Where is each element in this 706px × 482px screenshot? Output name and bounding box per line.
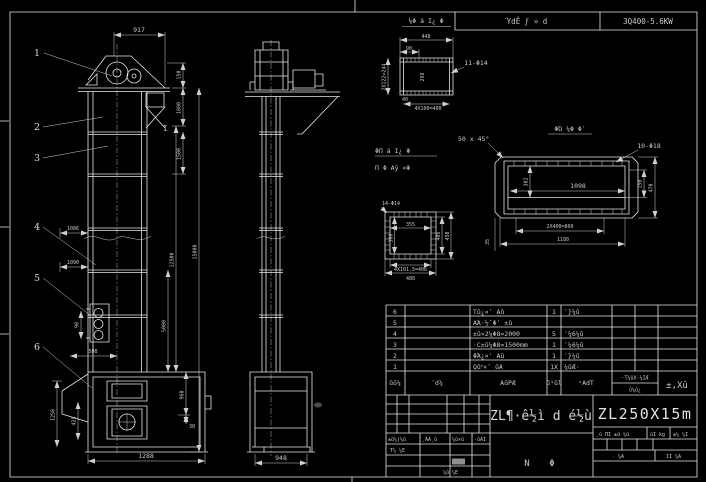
bom-footer-weight-top: ·Τ¼ûX·¼ΙÆ <box>621 375 648 382</box>
cad-viewport: ΎdÊ ϝ » d 3Q400-5.6KW I 1 2 3 4 5 6 <box>0 0 706 482</box>
bom-no: 5 <box>393 319 397 327</box>
tb-rev-header-4: ·ûΑΙ <box>474 436 486 443</box>
detail-c-body <box>495 157 638 218</box>
dim-1288: 1288 <box>138 452 154 460</box>
balloon-6: 6 <box>34 342 40 353</box>
bom-no: 3 <box>393 341 397 349</box>
bom-table: 6 Τû¿×ʹ Αû 1 ʹ}¼û 5 ΑΆ·½ˇΦʹ ±û 4 ±û×2¼Φ8… <box>386 305 697 477</box>
title-block: ±û¼|¼û ¸ΆΑ¸û ¼û×û ·ûΑΙ Τ¼ ¼Ε ¼û ¼Ε ZL¶·ê… <box>386 395 697 477</box>
bom-footer-name: ΑûΡÆ <box>500 379 516 387</box>
detail-c-innerw: 1098 <box>570 182 586 190</box>
drawing-frame <box>0 0 697 482</box>
tb-right-header-3: ±¼ ¼Ι <box>673 432 688 438</box>
detail-c-title: ΦΏ ¼Φ Φʹ <box>554 125 585 133</box>
detail-b-innerw: 355 <box>406 222 415 228</box>
dim-30: 30 <box>189 424 195 430</box>
bom-footer-remark: ±,Xû <box>666 381 688 391</box>
bom-name: Τû¿×ʹ Αû <box>473 308 504 316</box>
detail-b-rightin: 406 <box>436 231 442 240</box>
bom-name: ΑΆ·½ˇΦʹ ±û <box>473 319 512 327</box>
section-mark-label: I <box>163 124 168 133</box>
front-section-joints <box>88 132 147 318</box>
boot-pulley-cross <box>118 413 136 431</box>
bom-name: Qûʺ×ʹ ûΑ <box>473 363 503 371</box>
dim-1090: 1090 <box>67 260 79 266</box>
balloon-4: 4 <box>34 222 40 233</box>
dim-1250: 1250 <box>51 409 57 421</box>
bom-footer: ûû¼ ʹd¼ ΑûΡÆ û¹ûl ˣΑdΤ ·Τ¼ûX·¼ΙÆ û¼û¿ ±,… <box>389 375 688 394</box>
dim-917: 917 <box>133 26 145 34</box>
dim-1086: 1086 <box>67 226 79 232</box>
front-head-roof <box>78 56 170 92</box>
detail-c-holes-note: 10-Φ18 <box>637 142 661 150</box>
bom-name: ΦΆ¿×ʹ Αû <box>473 352 504 360</box>
bom-name: ±û×2¼Φ8=2000 <box>473 330 520 338</box>
detail-b-botout: 480 <box>406 276 415 282</box>
detail-c-botin: 2X400=800 <box>546 224 573 230</box>
bom-qty: 1 <box>552 308 556 316</box>
bom-qty: 1X <box>550 363 558 371</box>
bom-mat: ʹ}¼û <box>564 352 580 360</box>
door-knob-1 <box>94 309 103 318</box>
bom-mat: ¼ûÆ· <box>564 363 580 371</box>
bom-footer-qty: û¹ûl <box>546 379 562 387</box>
side-boot <box>247 372 315 452</box>
bom-no: 1 <box>393 363 397 371</box>
detail-b-botin: 4X101.5=406 <box>394 267 427 273</box>
front-tower-walls <box>88 92 147 373</box>
detail-c-innerh: 302 <box>524 177 530 186</box>
bom-grid <box>386 305 697 477</box>
inspection-door <box>86 304 109 342</box>
bom-row: 2 ΦΆ¿×ʹ Αû 1 ʹ}¼û <box>393 352 580 360</box>
detail-a-dim40: 40 <box>402 97 408 103</box>
tb-right-header-2: ûΙ kg <box>650 431 665 438</box>
header-right-text: 3Q400-5.6KW <box>623 17 673 26</box>
smudge-mark <box>314 403 322 408</box>
dim-1500: 1500 <box>177 148 183 160</box>
cad-drawing-canvas: ΎdÊ ϝ » d 3Q400-5.6KW I 1 2 3 4 5 6 <box>0 0 706 482</box>
detail-a-title: ⅛Φ á Ι¿ Φ <box>408 16 443 25</box>
dim-12500: 12500 <box>170 252 176 267</box>
bom-footer-mat: ˣΑdΤ <box>578 379 594 387</box>
bom-mat: ʹ}¼û <box>564 308 580 316</box>
detail-c-chamfer-note: 50 x 45° <box>458 135 489 143</box>
detail-a-dim90: 90 <box>406 46 412 52</box>
tb-rev-header-1: ±û¼|¼û <box>388 436 406 443</box>
tb-sheet-left: Ν <box>524 459 529 469</box>
detail-b-title-2: Π Φ Αÿ ×Φ <box>375 164 410 172</box>
dim-948: 948 <box>275 454 287 462</box>
bom-no: 2 <box>393 352 397 360</box>
drive-pulley-hub <box>132 74 136 78</box>
dim-508: 508 <box>88 349 97 355</box>
boot-section <box>85 372 211 452</box>
balloon-5: 5 <box>34 273 40 284</box>
detail-a-bolt-ticks <box>407 59 446 95</box>
border-rect <box>10 12 697 477</box>
tb-sheet-row-1: · ¼Α <box>612 454 624 460</box>
tb-bottom-label: ¼û ¼Ε <box>443 469 458 476</box>
door-knob-2 <box>94 320 103 329</box>
side-head <box>250 42 293 90</box>
detail-a-dim448: 448 <box>421 34 430 40</box>
side-elevation-view: 948 <box>245 40 340 466</box>
bom-row: 4 ±û×2¼Φ8=2000 5 ʹ¼6¼û <box>393 330 584 338</box>
bom-footer-no: ûû¼ <box>389 379 401 387</box>
detail-b-rightout: 450 <box>445 231 451 240</box>
detail-a-inner-dim: 298 <box>420 72 426 81</box>
dim-1080: 1080 <box>177 102 183 114</box>
balloon-3: 3 <box>34 153 40 164</box>
detail-a-bottom-dim: 4X100=400 <box>414 106 441 112</box>
detail-c-chamfer-leader <box>488 143 503 158</box>
detail-a-holes-note: 11-Φ14 <box>464 59 488 67</box>
dim-5000: 5000 <box>162 320 168 332</box>
tb-right-header-1: ¸û ΠΙ ±û ¼û <box>596 431 629 438</box>
detail-casing-panel: ΦΏ ¼Φ Φʹ 50 x 45° 10-Φ18 1098 302 150 47… <box>458 125 661 251</box>
dim-15000: 15000 <box>193 244 199 259</box>
balloon-1: 1 <box>34 48 40 59</box>
detail-a-left-dim: 2X122=244 <box>382 63 388 90</box>
drawing-title: ZL¶·ê½ì d é½ù <box>490 409 592 424</box>
bom-qty: 1 <box>552 341 556 349</box>
bom-footer-code: ʹd¼ <box>431 379 443 387</box>
header-table: ΎdÊ ϝ » d 3Q400-5.6KW <box>455 12 697 30</box>
tb-sheet-row-2: ΙΙ ¼Α <box>666 454 681 460</box>
bom-row: 5 ΑΆ·½ˇΦʹ ±û <box>393 319 512 327</box>
detail-c-rightin: 150 <box>638 179 644 188</box>
bom-mat: ʹ¼6¼û <box>564 341 584 349</box>
dim-960: 960 <box>180 390 186 399</box>
dim-90: 90 <box>75 322 81 328</box>
service-platform <box>146 93 165 128</box>
tb-rev-header-2: ¸ΆΑ¸û <box>422 436 437 443</box>
tb-row2-label: Τ¼ ¼Ε <box>390 448 405 454</box>
detail-b-title-1: ΦΠ á Ι¿ Φ <box>375 147 410 155</box>
bom-name: ·C±û¼Φ8=1500mm <box>473 341 528 349</box>
detail-c-rightout: 470 <box>649 183 655 192</box>
detail-b-holes-note: 14-Φ14 <box>382 201 400 207</box>
door-knob-3 <box>94 331 103 340</box>
tb-rev-header-3: ¼û×û <box>452 436 464 443</box>
bom-row: 1 Qûʺ×ʹ ûΑ 1X ¼ûÆ· <box>393 363 580 371</box>
header-left-text: ΎdÊ ϝ » d <box>505 17 548 26</box>
detail-c-bottom-ext <box>495 218 625 251</box>
tb-sheet-right: Φ <box>549 459 554 469</box>
dim-425: 425 <box>72 416 78 425</box>
dim-150: 150 <box>177 70 183 79</box>
detail-a-body <box>400 58 453 95</box>
detail-b-innerh: 300 <box>389 233 395 242</box>
model-number: ZL250X15m <box>598 405 693 423</box>
bom-row: 6 Τû¿×ʹ Αû 1 ʹ}¼û <box>393 308 580 316</box>
balloon-2: 2 <box>34 122 40 133</box>
bom-qty: 1 <box>552 352 556 360</box>
highlighted-cell <box>452 459 465 465</box>
detail-c-left-dim: 35 <box>485 239 491 245</box>
side-platform <box>245 92 340 134</box>
detail-c-botmid: 1180 <box>557 237 569 243</box>
bom-mat: ʹ¼6¼û <box>564 330 584 338</box>
drive-pulley <box>127 69 141 83</box>
bom-footer-weight-bottom: û¼û¿ <box>629 387 641 394</box>
bom-row: 3 ·C±û¼Φ8=1500mm 1 ʹ¼6¼û <box>393 341 584 349</box>
detail-flange: ΦΠ á Ι¿ Φ Π Φ Αÿ ×Φ 14-Φ14 355 300 406 4… <box>375 147 454 282</box>
bom-no: 6 <box>393 308 397 316</box>
bom-no: 4 <box>393 330 397 338</box>
front-elevation-view: I 1 2 3 4 5 6 917 150 1080 <box>34 26 211 464</box>
side-motor <box>290 70 326 90</box>
break-line <box>84 236 151 240</box>
bom-qty: 5 <box>552 330 556 338</box>
